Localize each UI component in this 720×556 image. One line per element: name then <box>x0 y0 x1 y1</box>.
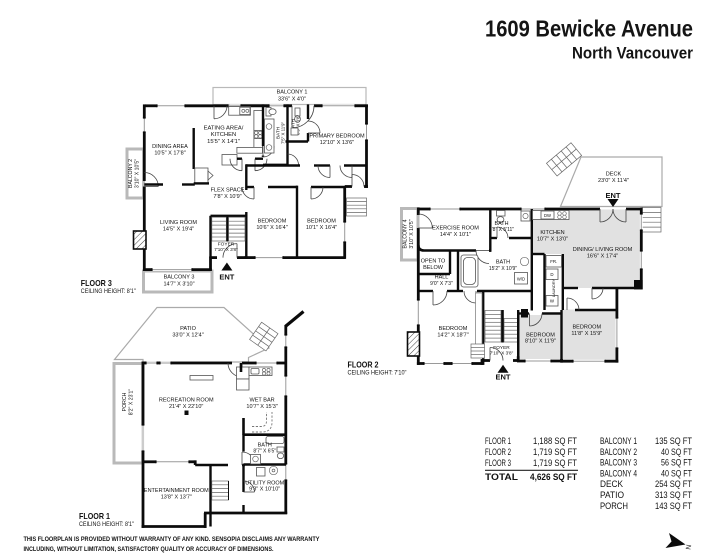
svg-text:12'10" X 13'6": 12'10" X 13'6" <box>320 140 354 146</box>
svg-text:8'2" X 23'1": 8'2" X 23'1" <box>129 389 135 416</box>
svg-text:OPEN TO: OPEN TO <box>421 259 446 265</box>
svg-text:313 SQ FT: 313 SQ FT <box>655 490 692 500</box>
svg-text:BALCONY 3: BALCONY 3 <box>600 458 637 468</box>
svg-text:9'3" X 10'10": 9'3" X 10'10" <box>249 487 280 493</box>
svg-text:13'8" X 13'7": 13'8" X 13'7" <box>161 494 192 500</box>
svg-text:21'4" X 22'10": 21'4" X 22'10" <box>169 404 203 410</box>
svg-text:D: D <box>550 272 553 277</box>
svg-text:CEILING HEIGHT: 8'1": CEILING HEIGHT: 8'1" <box>81 289 136 295</box>
svg-text:PATIO: PATIO <box>600 490 624 500</box>
svg-text:TOTAL: TOTAL <box>485 472 518 482</box>
svg-text:BATH: BATH <box>496 260 510 266</box>
svg-text:BALCONY 2: BALCONY 2 <box>600 447 637 457</box>
svg-text:PRIMARY BEDROOM: PRIMARY BEDROOM <box>309 134 365 140</box>
svg-text:DW: DW <box>544 213 551 218</box>
svg-text:10'7" X 15'3": 10'7" X 15'3" <box>246 404 277 410</box>
svg-text:BALCONY 1: BALCONY 1 <box>600 436 637 446</box>
svg-text:DECK: DECK <box>606 172 622 178</box>
svg-text:BALCONY 4: BALCONY 4 <box>600 468 637 478</box>
svg-text:7'8" X 10'9": 7'8" X 10'9" <box>213 194 241 200</box>
svg-text:BALCONY 3: BALCONY 3 <box>164 275 195 281</box>
svg-text:EXERCISE ROOM: EXERCISE ROOM <box>432 226 479 232</box>
svg-text:254 SQ FT: 254 SQ FT <box>655 479 692 489</box>
svg-text:15'2" X 10'9": 15'2" X 10'9" <box>489 266 517 272</box>
svg-text:KITCHEN: KITCHEN <box>540 230 564 236</box>
svg-text:33'6" X 4'0": 33'6" X 4'0" <box>278 97 306 103</box>
svg-text:PORCH: PORCH <box>122 392 128 411</box>
svg-text:THIS FLOORPLAN IS PROVIDED WIT: THIS FLOORPLAN IS PROVIDED WITHOUT WARRA… <box>24 536 321 543</box>
svg-text:RECREATION ROOM: RECREATION ROOM <box>159 398 214 404</box>
svg-text:WET BAR: WET BAR <box>250 398 275 404</box>
svg-text:3'10" X 10'5": 3'10" X 10'5" <box>135 159 141 188</box>
svg-text:BALCONY 2: BALCONY 2 <box>128 159 134 188</box>
svg-text:7'5" X 11'9": 7'5" X 11'9" <box>281 122 286 144</box>
svg-text:16'6" X 17'4": 16'6" X 17'4" <box>587 253 618 259</box>
svg-text:8'10" X 11'9": 8'10" X 11'9" <box>525 339 556 345</box>
svg-text:3'10" X 10'5": 3'10" X 10'5" <box>409 219 415 248</box>
svg-text:FLEX SPACE: FLEX SPACE <box>211 188 245 194</box>
svg-text:10'1" X 16'4": 10'1" X 16'4" <box>306 225 337 231</box>
svg-text:W/D: W/D <box>517 276 525 281</box>
svg-text:FLOOR 1: FLOOR 1 <box>485 436 511 446</box>
svg-text:DECK: DECK <box>600 479 624 489</box>
svg-text:10'5" X 17'8": 10'5" X 17'8" <box>154 151 185 157</box>
svg-text:FLOOR 3: FLOOR 3 <box>81 279 112 288</box>
svg-text:40 SQ FT: 40 SQ FT <box>661 447 692 457</box>
svg-text:LAUNDRY: LAUNDRY <box>552 278 556 297</box>
svg-text:BEDROOM: BEDROOM <box>258 219 287 225</box>
svg-text:BEDROOM: BEDROOM <box>439 326 468 332</box>
svg-text:1,719 SQ FT: 1,719 SQ FT <box>533 458 577 468</box>
svg-text:33'0" X 12'4": 33'0" X 12'4" <box>172 333 203 339</box>
svg-text:135 SQ FT: 135 SQ FT <box>655 436 692 446</box>
svg-text:KITCHEN: KITCHEN <box>211 132 236 138</box>
svg-text:9'0" X 7'3": 9'0" X 7'3" <box>430 281 453 287</box>
svg-text:7'10" X 3'8": 7'10" X 3'8" <box>214 247 238 252</box>
svg-text:ENT: ENT <box>219 273 234 282</box>
svg-text:CEILING HEIGHT: 7'10": CEILING HEIGHT: 7'10" <box>348 371 407 377</box>
svg-text:4,626 SQ FT: 4,626 SQ FT <box>530 472 577 482</box>
svg-text:10'7" X 13'0": 10'7" X 13'0" <box>537 237 568 243</box>
svg-text:BEDROOM: BEDROOM <box>572 325 601 331</box>
svg-text:ENT: ENT <box>496 373 511 382</box>
svg-text:7'8" X 5'11": 7'8" X 5'11" <box>489 227 514 233</box>
svg-text:15'5" X 14'1": 15'5" X 14'1" <box>207 139 240 145</box>
svg-text:DINING/ LIVING ROOM: DINING/ LIVING ROOM <box>573 247 633 253</box>
svg-text:BALCONY 1: BALCONY 1 <box>277 90 308 96</box>
svg-text:EATING AREA/: EATING AREA/ <box>204 126 244 132</box>
svg-text:10'6" X 16'4": 10'6" X 16'4" <box>256 225 287 231</box>
svg-text:DINING AREA: DINING AREA <box>152 144 188 150</box>
svg-text:HALL: HALL <box>435 275 449 281</box>
svg-text:BALCONY 4: BALCONY 4 <box>403 219 409 248</box>
svg-text:North Vancouver: North Vancouver <box>572 44 693 63</box>
svg-text:1,188 SQ FT: 1,188 SQ FT <box>533 436 577 446</box>
svg-text:1609 Bewicke Avenue: 1609 Bewicke Avenue <box>485 16 693 42</box>
svg-text:14'5" X 19'4": 14'5" X 19'4" <box>163 227 194 233</box>
svg-text:ENTERTAINMENT ROOM: ENTERTAINMENT ROOM <box>144 488 209 494</box>
svg-text:1,719 SQ FT: 1,719 SQ FT <box>533 447 577 457</box>
svg-text:PORCH: PORCH <box>600 501 628 511</box>
svg-text:FLOOR 2: FLOOR 2 <box>348 361 379 370</box>
svg-text:FLOOR 3: FLOOR 3 <box>485 458 511 468</box>
svg-text:14'4" X 10'1": 14'4" X 10'1" <box>440 232 471 238</box>
svg-text:7'10" X 3'8": 7'10" X 3'8" <box>490 351 514 356</box>
svg-text:ENT: ENT <box>606 191 621 200</box>
svg-text:143 SQ FT: 143 SQ FT <box>655 501 692 511</box>
svg-text:PATIO: PATIO <box>180 326 197 332</box>
svg-text:11'8" X 15'9": 11'8" X 15'9" <box>571 331 602 337</box>
svg-text:40 SQ FT: 40 SQ FT <box>661 468 692 478</box>
svg-text:23'0" X 11'4": 23'0" X 11'4" <box>598 178 629 184</box>
svg-text:14'2" X 18'7": 14'2" X 18'7" <box>437 333 468 339</box>
svg-text:BEDROOM: BEDROOM <box>307 219 336 225</box>
svg-text:CEILING HEIGHT: 8'1": CEILING HEIGHT: 8'1" <box>79 522 134 528</box>
svg-text:FLOOR 2: FLOOR 2 <box>485 447 511 457</box>
svg-text:FLOOR 1: FLOOR 1 <box>79 512 110 521</box>
svg-text:8'7" X 6'5": 8'7" X 6'5" <box>253 449 276 455</box>
svg-text:LIVING ROOM: LIVING ROOM <box>160 220 197 226</box>
svg-text:56 SQ FT: 56 SQ FT <box>661 458 692 468</box>
svg-text:FR.: FR. <box>550 259 557 264</box>
svg-text:14'7" X 3'10": 14'7" X 3'10" <box>163 282 194 288</box>
svg-text:BELOW: BELOW <box>423 265 444 271</box>
svg-text:INCLUDING, WITHOUT LIMITATION,: INCLUDING, WITHOUT LIMITATION, SATISFACT… <box>24 546 274 553</box>
